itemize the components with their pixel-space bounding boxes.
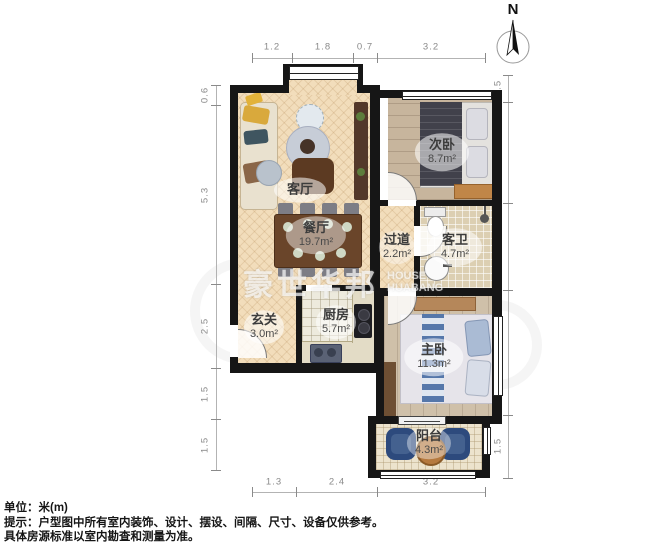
- bed2-pillow: [466, 146, 488, 178]
- tick: [485, 53, 486, 63]
- burner: [358, 309, 370, 321]
- balcony-sliding-door: [398, 416, 446, 425]
- balcony-side-window: [483, 427, 491, 455]
- plant: [356, 112, 365, 121]
- wall: [370, 90, 380, 290]
- bay-opening: [289, 80, 357, 95]
- dim-line-bottom: [252, 492, 485, 493]
- master-pillow: [464, 319, 492, 357]
- master-wardrobe: [384, 362, 396, 416]
- room-label-entry: 玄关 3.0m²: [244, 310, 284, 344]
- tick: [211, 368, 221, 369]
- sink-basin: [314, 348, 323, 357]
- master-window: [493, 316, 503, 396]
- master-pillow: [464, 359, 491, 397]
- dim-top-3: 0.7: [357, 42, 373, 53]
- tick: [252, 53, 253, 63]
- entry-door-gap: [230, 325, 238, 357]
- tip-line-2: 具体房源标准以室内勘查和测量为准。: [4, 530, 384, 545]
- unit-line: 单位：米(m): [4, 501, 384, 516]
- room-label-bedroom2: 次卧 8.7m²: [415, 133, 469, 171]
- dim-line-right: [508, 75, 509, 478]
- dim-left-4: 1.5: [200, 386, 211, 402]
- bed2-pillow: [466, 108, 488, 140]
- plant: [357, 168, 365, 176]
- balcony-window: [380, 471, 476, 479]
- kitchen-door-gap: [306, 285, 332, 291]
- tick: [353, 53, 354, 63]
- room-label-kitchen: 厨房 5.7m²: [316, 305, 356, 339]
- room-label-balcony: 阳台 4.3m²: [407, 427, 451, 459]
- dim-left-2: 5.3: [200, 187, 211, 203]
- dim-top-1: 1.2: [264, 42, 280, 53]
- tick: [211, 419, 221, 420]
- shower-head-icon: [480, 214, 489, 223]
- dim-right-5: 1.5: [493, 438, 504, 454]
- bedroom2-window: [402, 91, 492, 100]
- burner: [358, 322, 370, 334]
- dim-top-4: 3.2: [423, 42, 439, 53]
- room-label-master: 主卧 11.3m²: [404, 338, 463, 376]
- room-label-living: 客厅: [274, 178, 326, 203]
- tick: [485, 487, 486, 497]
- tick: [503, 290, 513, 291]
- footer-notes: 单位：米(m) 提示：户型图中所有室内装饰、设计、摆设、间隔、尺寸、设备仅供参考…: [4, 501, 384, 545]
- rug-center-decor: [300, 139, 315, 154]
- floorplan-canvas: N 1.2 1.8 0.7 3.2 1.3 2.4 3.2 0.6 5.3 2.…: [0, 0, 657, 553]
- dim-bottom-2: 2.4: [329, 477, 345, 488]
- room-label-dining: 餐厅 19.7m²: [286, 216, 346, 254]
- dim-bottom-1: 1.3: [266, 477, 282, 488]
- plate: [336, 248, 346, 258]
- dim-left-1: 0.6: [200, 87, 211, 103]
- room-label-hallway: 过道 2.2m²: [379, 230, 415, 264]
- tick: [296, 487, 297, 497]
- sink-basin: [327, 348, 336, 357]
- bed2-bench: [454, 184, 494, 199]
- dim-top-2: 1.8: [315, 42, 331, 53]
- tick: [503, 415, 513, 416]
- room-label-bathroom: 客卫 4.7m²: [428, 228, 482, 266]
- tick: [503, 102, 513, 103]
- tick: [211, 105, 221, 106]
- dim-left-5: 1.5: [200, 437, 211, 453]
- pillow-dark: [243, 129, 268, 145]
- tick: [211, 470, 221, 471]
- tick: [377, 53, 378, 63]
- tick: [252, 487, 253, 497]
- wall: [230, 363, 380, 373]
- master-dresser: [414, 297, 476, 311]
- tick: [503, 203, 513, 204]
- tick: [377, 487, 378, 497]
- compass-icon: [490, 17, 536, 67]
- wall: [296, 291, 302, 363]
- master-door-gap: [388, 288, 416, 296]
- north-indicator: N: [490, 3, 536, 72]
- tick: [211, 85, 221, 86]
- dim-line-top: [252, 58, 485, 59]
- tick: [503, 478, 513, 479]
- north-label: N: [490, 3, 536, 17]
- tick: [292, 53, 293, 63]
- wall: [376, 296, 384, 416]
- wall: [368, 416, 376, 478]
- bay-window: [289, 66, 359, 80]
- tick: [503, 75, 513, 76]
- tip-line-1: 提示：户型图中所有室内装饰、设计、摆设、间隔、尺寸、设备仅供参考。: [4, 516, 384, 531]
